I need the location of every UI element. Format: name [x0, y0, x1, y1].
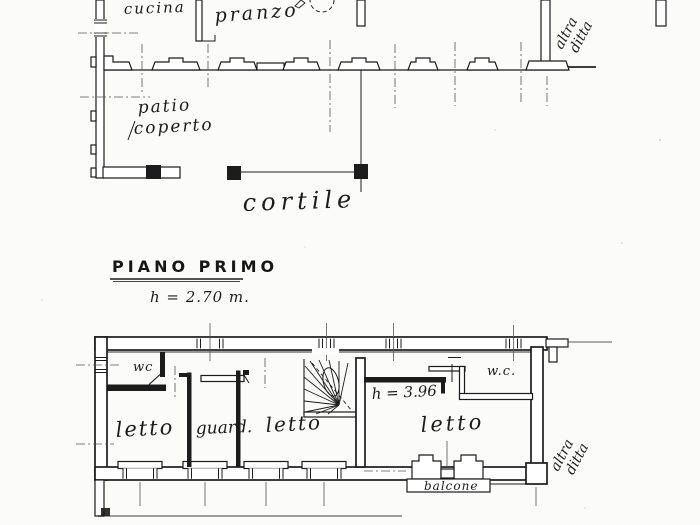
room-label-guard: guard. — [195, 417, 252, 439]
stair-side-wall — [356, 358, 365, 467]
neighbor-wall-stub — [656, 0, 666, 26]
pillar — [227, 166, 241, 180]
pillar — [146, 165, 161, 179]
window-symbol — [95, 19, 105, 37]
room-label-letto-middle: letto — [265, 410, 323, 437]
room-label-letto-left: letto — [115, 415, 175, 442]
wall-foot — [101, 508, 110, 516]
room-label-cucina: cucina — [124, 0, 186, 18]
room-label-patio-line1: patio — [137, 95, 192, 118]
room-label-wc-right: w.c. — [487, 364, 516, 379]
room-label-letto-right: letto — [420, 410, 485, 437]
room-label-patio-line2: coperto — [133, 115, 214, 139]
floor-plan-scan: cucina pranzo patio coperto cortile altr… — [0, 0, 700, 525]
plan-title: PIANO PRIMO — [112, 257, 278, 276]
stair-height-note: h = 3.96 — [371, 382, 437, 403]
height-note: h = 2.70 m. — [150, 288, 250, 306]
neighbor-wall-step — [549, 347, 557, 362]
pillar — [354, 164, 368, 179]
balcony-label: balcone — [424, 479, 478, 493]
interior-wall-stub — [357, 0, 365, 26]
courtyard-label-cortile: cortile — [242, 185, 356, 217]
right-wall-stem — [541, 0, 550, 63]
room-label-wc: wc — [133, 360, 153, 375]
neighbor-wall-step — [546, 339, 568, 347]
corner-pier — [526, 463, 547, 484]
